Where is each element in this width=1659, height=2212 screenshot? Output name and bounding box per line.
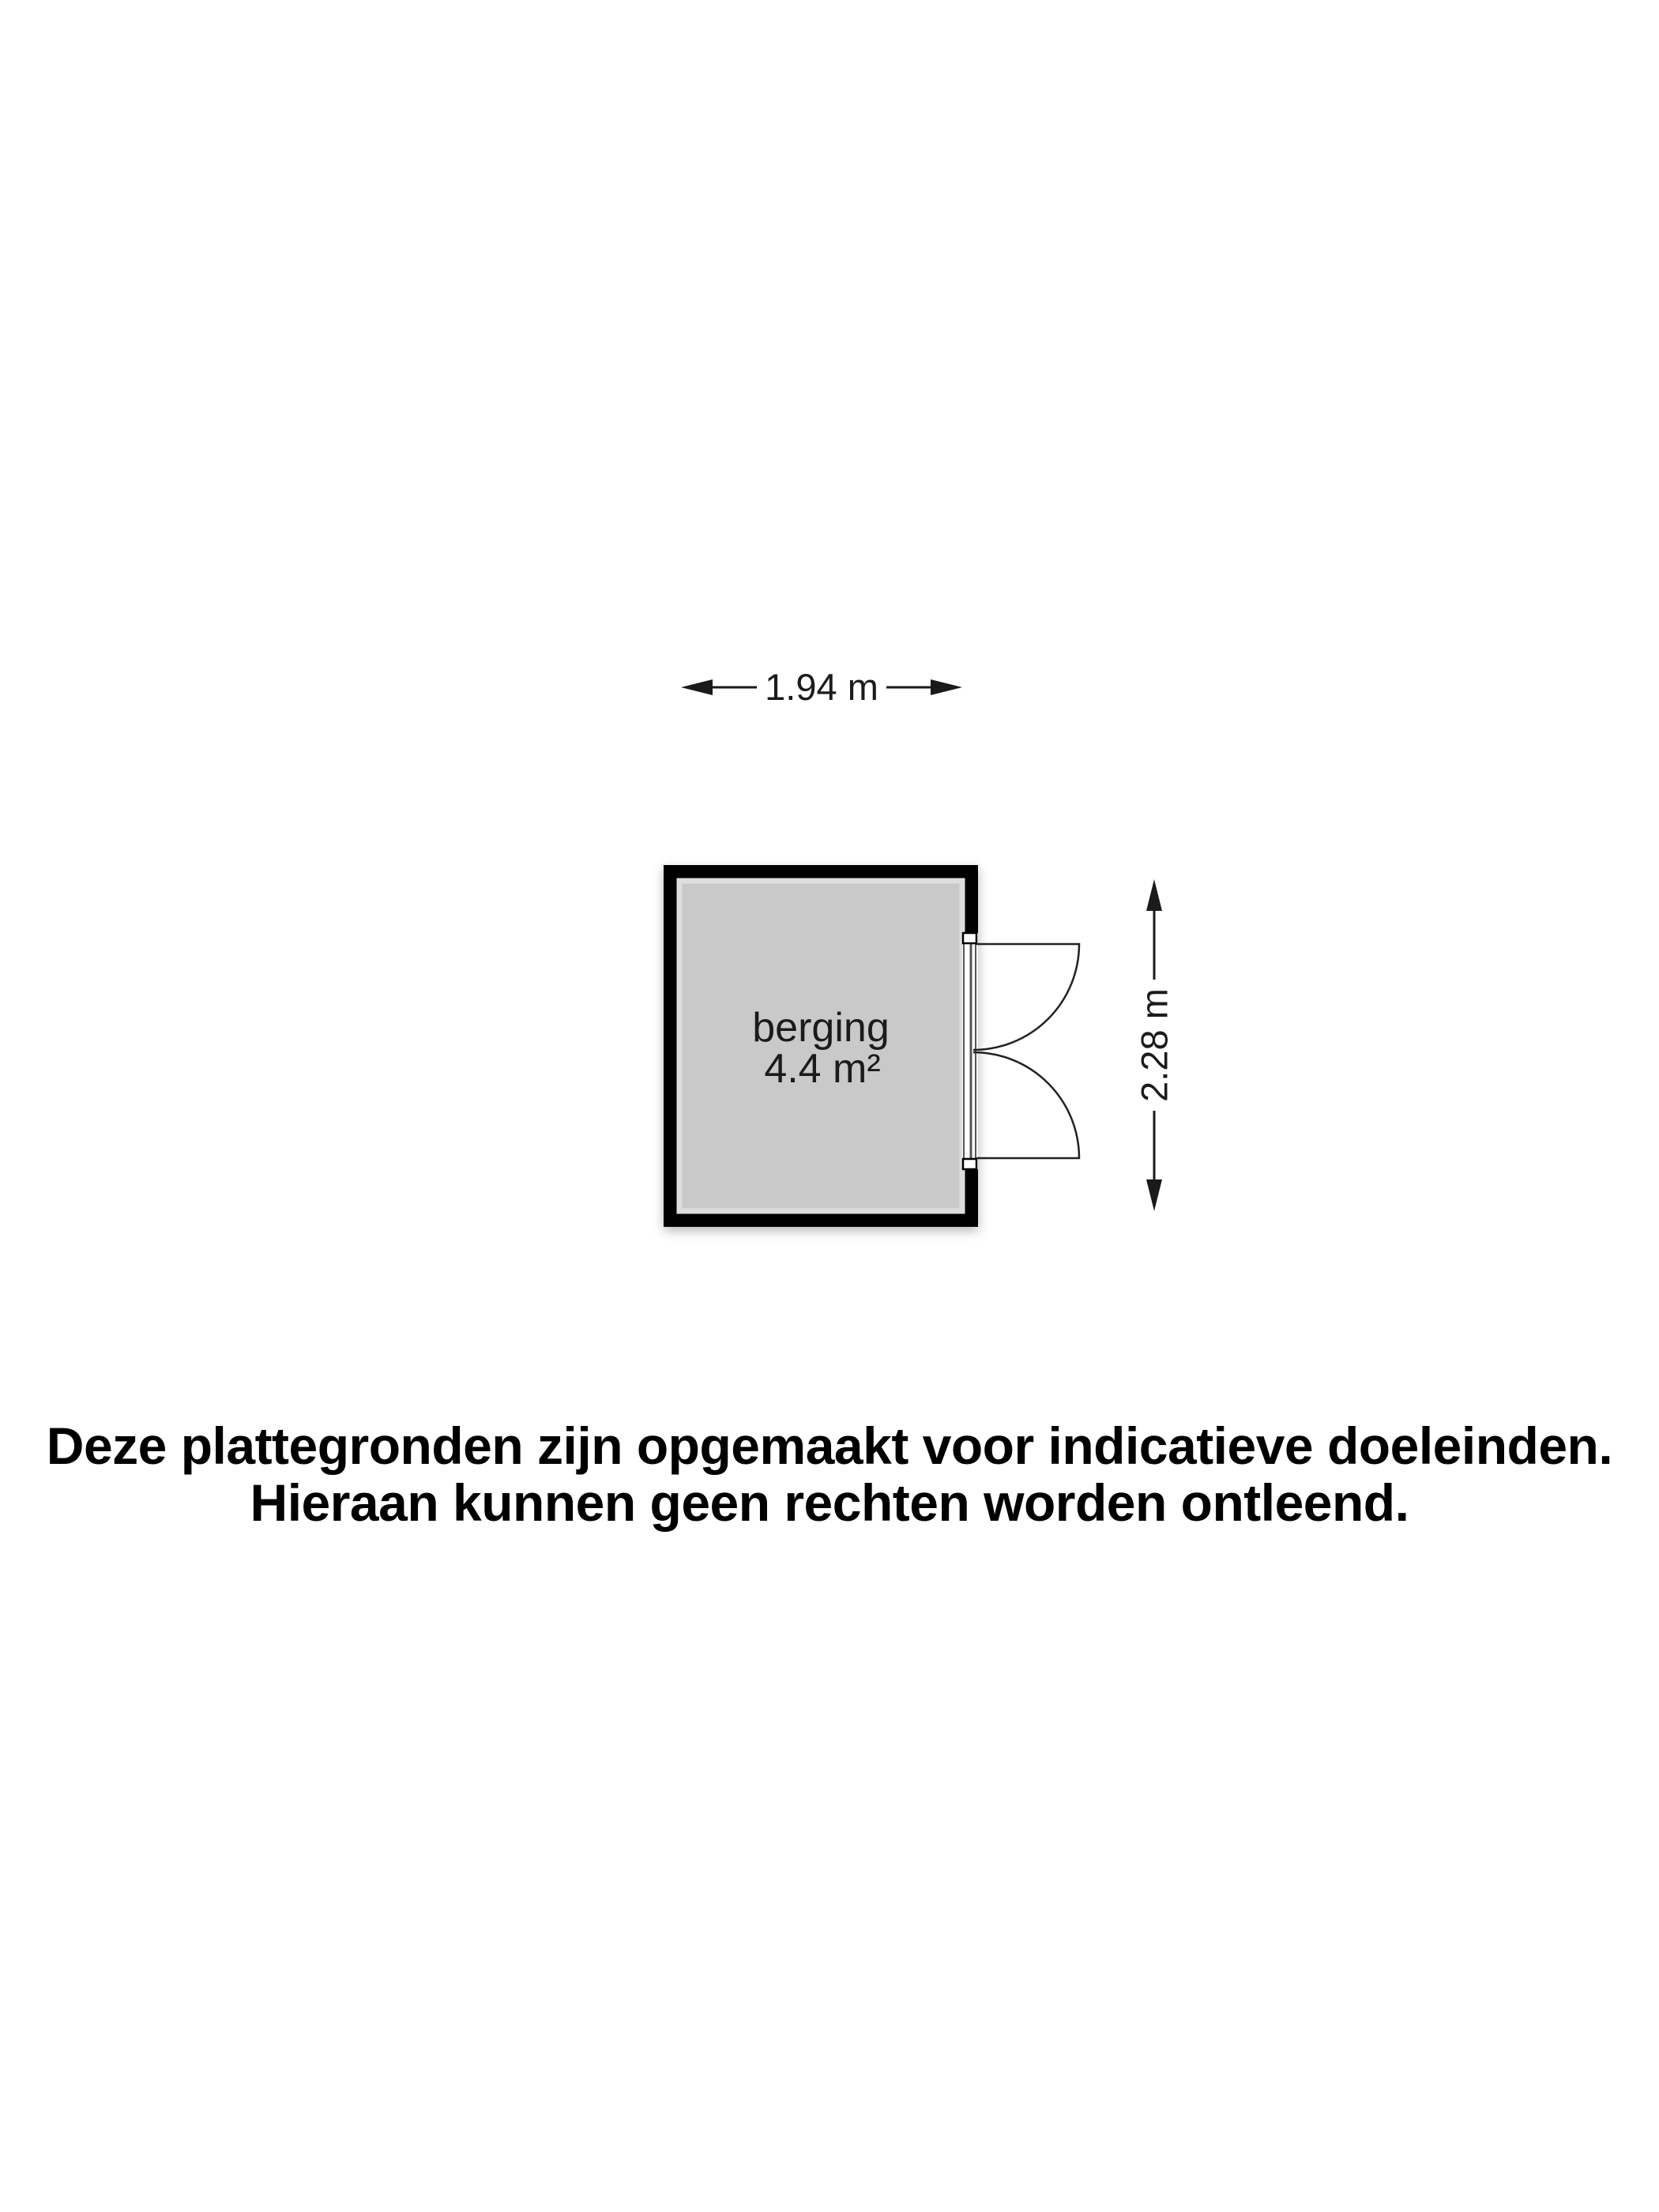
arrow-left-icon (681, 679, 713, 695)
door-opening (962, 933, 978, 1169)
double-door-swing-icon (973, 944, 1079, 1158)
arrow-up-icon (1146, 879, 1162, 911)
floorplan-page: 1.94 m berging 4.4 m² (0, 0, 1659, 2212)
arrow-right-icon (931, 679, 962, 695)
room: berging 4.4 m² (664, 865, 1079, 1227)
floor-plan: 1.94 m berging 4.4 m² (0, 0, 1659, 2212)
arrow-down-icon (1146, 1179, 1162, 1211)
door-jamb-bottom (963, 1159, 976, 1169)
height-dimension-label: 2.28 m (1134, 988, 1176, 1102)
door-jamb-top (963, 933, 976, 943)
width-dimension-label: 1.94 m (765, 666, 878, 708)
door-leaf-top (973, 944, 1079, 1050)
disclaimer-line-1: Deze plattegronden zijn opgemaakt voor i… (0, 1417, 1659, 1474)
disclaimer-line-2: Hieraan kunnen geen rechten worden ontle… (0, 1474, 1659, 1531)
disclaimer: Deze plattegronden zijn opgemaakt voor i… (0, 1417, 1659, 1531)
room-area: 4.4 m² (764, 1046, 880, 1092)
room-label: berging (752, 1005, 889, 1051)
door-leaf-bottom (973, 1052, 1079, 1158)
